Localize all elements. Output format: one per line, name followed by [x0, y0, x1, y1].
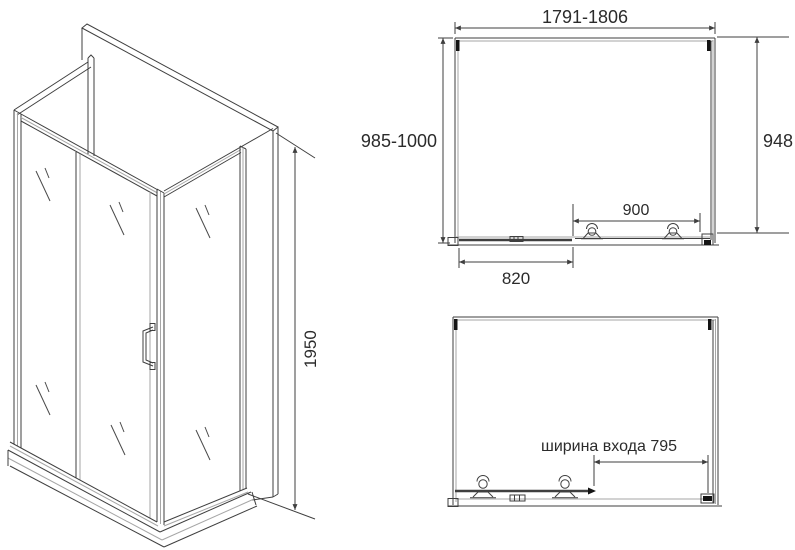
entrance-width-dimension: ширина входа 795: [541, 438, 708, 493]
wall-profile-right: [707, 40, 711, 51]
back-glass-panel: [82, 24, 278, 500]
plan-view: 1791-1806 985-1000 948 900 820: [361, 7, 793, 288]
shower-enclosure-drawing: 1950: [0, 0, 795, 550]
wall-profile-left: [454, 319, 458, 330]
open-frame: [448, 317, 722, 507]
door-width-label: 900: [623, 202, 650, 219]
center-guide: [510, 495, 525, 501]
side-height-dimension: 948: [717, 37, 793, 233]
iso-view: 1950: [8, 24, 320, 547]
rail-end-cap: [448, 238, 458, 246]
depth-dimension: 985-1000: [361, 38, 453, 243]
fixed-panel-dimension: 820: [459, 247, 573, 288]
height-dimension: 1950: [248, 133, 320, 519]
open-door-assembly: [455, 476, 596, 502]
roller: [470, 476, 496, 498]
door-edge-arrow: [588, 488, 596, 495]
height-dimension-label: 1950: [301, 330, 320, 368]
glass-reflection-marks: [36, 168, 210, 460]
door-handle: [143, 324, 155, 370]
door-width-dimension: 900: [573, 202, 700, 236]
right-glass-wall: [164, 129, 273, 527]
plan-frame: [455, 38, 715, 243]
fixed-panel-label: 820: [502, 269, 530, 288]
side-height-label: 948: [763, 131, 793, 151]
entrance-width-label: ширина входа 795: [541, 438, 677, 455]
overall-width-dimension: 1791-1806: [455, 7, 715, 34]
wall-profile-right: [708, 319, 712, 330]
depth-label: 985-1000: [361, 131, 437, 151]
plan-bottom-rail: [448, 224, 719, 246]
left-glass-wall: [14, 55, 94, 448]
technical-drawing-page: 1950: [0, 0, 795, 550]
front-sliding-doors: [10, 114, 164, 526]
open-door-view: ширина входа 795: [448, 317, 722, 507]
wall-profile-left: [456, 40, 460, 51]
roller: [552, 476, 578, 498]
overall-width-label: 1791-1806: [542, 7, 628, 27]
